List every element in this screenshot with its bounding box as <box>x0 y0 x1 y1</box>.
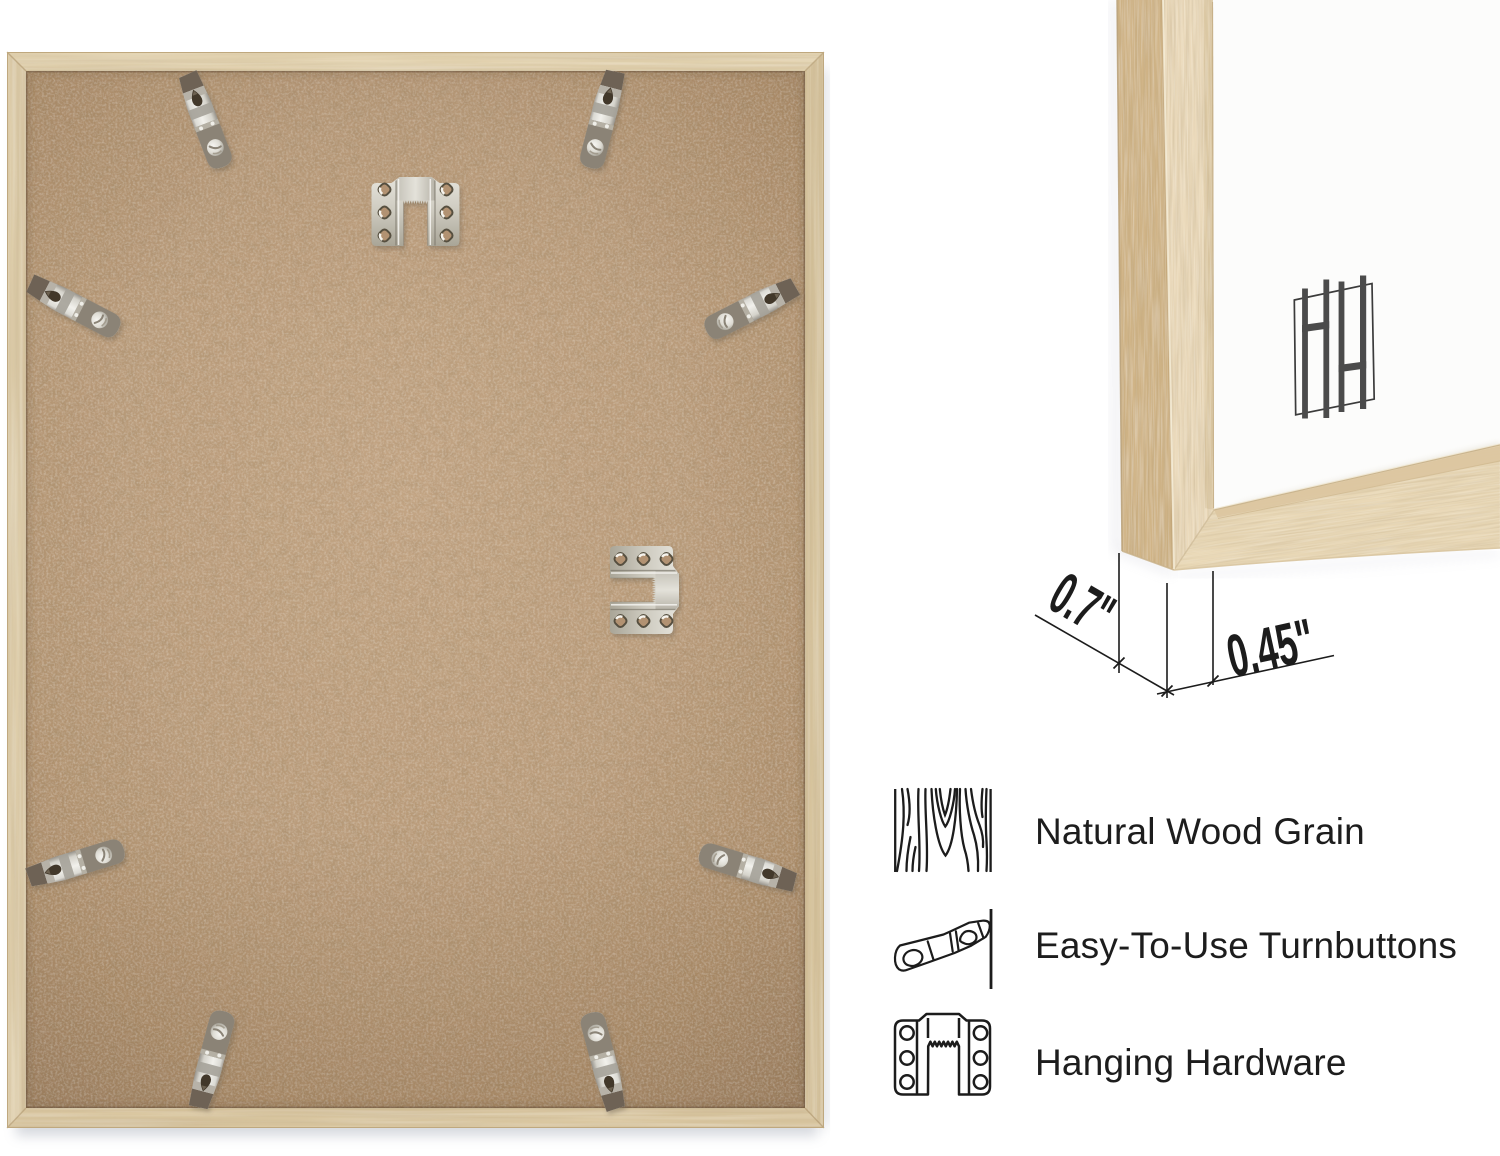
svg-text:Easy-To-Use Turnbuttons: Easy-To-Use Turnbuttons <box>1035 925 1457 966</box>
svg-text:Hanging Hardware: Hanging Hardware <box>1035 1042 1347 1083</box>
svg-text:Natural Wood Grain: Natural Wood Grain <box>1035 811 1365 852</box>
svg-text:0.45": 0.45" <box>1221 606 1321 690</box>
svg-text:0.7": 0.7" <box>1039 560 1126 649</box>
